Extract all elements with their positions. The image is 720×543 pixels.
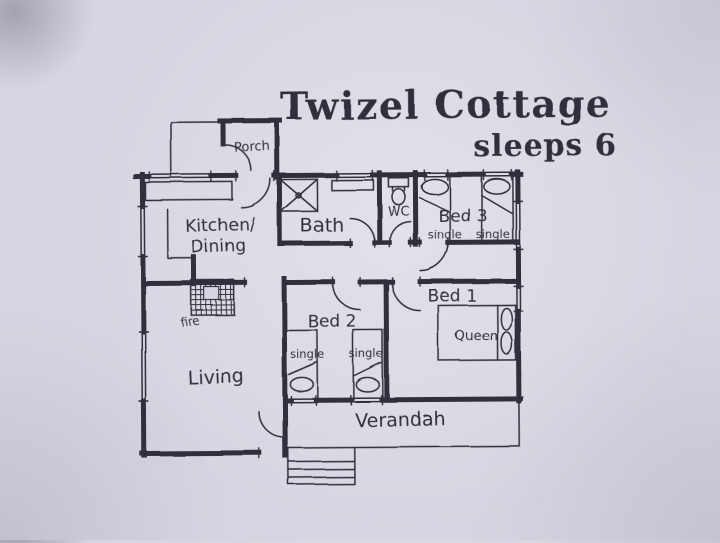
room-label-living: Living <box>187 365 244 389</box>
floorplan-photo: Twizel Cottage sleeps 6 <box>0 0 720 540</box>
room-label-kitchen-line2: Dining <box>191 236 247 258</box>
floorplan-drawing: Twizel Cottage sleeps 6 <box>0 0 720 543</box>
bed-label-bed2-single-right: single <box>350 347 384 361</box>
room-label-kitchen-line1: Kitchen/ <box>185 215 256 238</box>
kitchen-counter-icon <box>145 182 232 201</box>
bath-vanity-icon <box>331 180 373 190</box>
room-label-bed3: Bed 3 <box>438 206 487 226</box>
bed2-single-right-icon <box>353 330 382 400</box>
steps-icon <box>288 447 354 484</box>
bed-label-bed1-queen: Queen <box>455 329 498 344</box>
room-label-bed1: Bed 1 <box>428 286 477 306</box>
landing-deck <box>171 122 220 176</box>
room-label-bed2: Bed 2 <box>308 312 357 332</box>
label-fireplace: fire <box>180 313 200 329</box>
plan-subtitle: sleeps 6 <box>473 128 617 164</box>
door-porch-hall-icon <box>241 179 270 208</box>
room-label-porch: Porch <box>234 139 271 156</box>
bed-label-bed3-single-left: single <box>428 227 462 241</box>
door-living-verandah-icon <box>259 412 285 438</box>
toilet-icon <box>388 178 408 205</box>
door-bed1-icon <box>392 283 420 311</box>
door-bed3-icon <box>420 242 448 270</box>
room-label-wc: WC <box>388 205 410 220</box>
bed-label-bed2-single-left: single <box>291 347 325 361</box>
bed-label-bed3-single-right: single <box>476 227 510 241</box>
plan-title: Twizel Cottage <box>280 81 612 128</box>
door-bed2-icon <box>333 283 360 310</box>
shower-icon <box>280 179 317 211</box>
fireplace-icon <box>191 280 234 315</box>
room-label-bath: Bath <box>300 214 344 236</box>
bed2-single-left-icon <box>286 330 317 400</box>
door-wc-icon <box>390 222 411 243</box>
door-bath-icon <box>350 218 375 243</box>
room-label-verandah: Verandah <box>354 408 445 432</box>
